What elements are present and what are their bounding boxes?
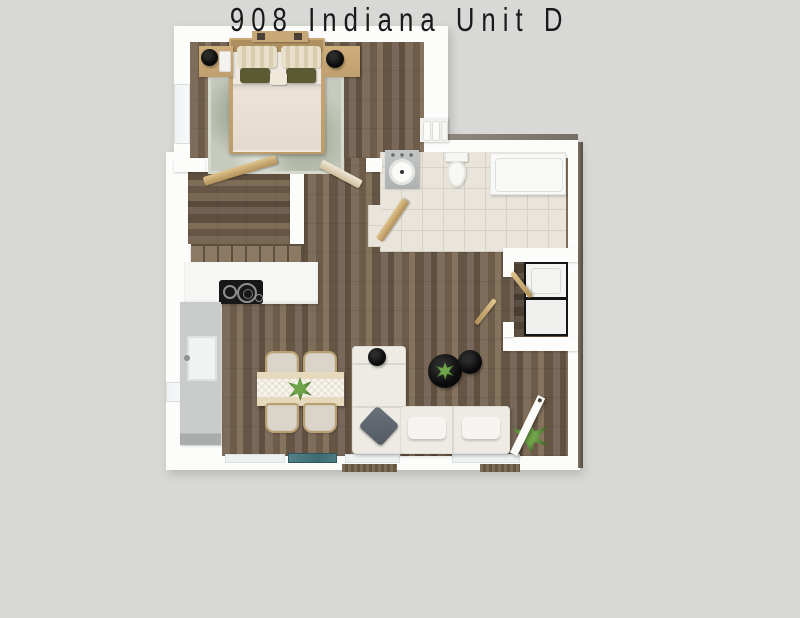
laundry-nook-south-wall [503,337,578,351]
sofa-seam-middle [452,406,454,454]
bathtub [490,153,566,195]
entry-door-handle [537,398,542,403]
striped-pillow-left [237,46,277,68]
washer-bottom-unit [526,300,566,334]
dining-chair-bottom-left [265,403,299,433]
white-throw-pillow-right [462,417,500,439]
olive-pillow-left [240,68,270,83]
accent-pillow-center [270,72,287,85]
laundry-nook-north-wall [503,248,578,262]
roof-edge-right [578,142,583,468]
bathroom-vanity [385,150,419,188]
faucet-set [389,153,415,157]
kitchen-faucet [184,355,190,361]
white-throw-pillow-left [408,417,446,439]
coffee-table-small [458,350,482,374]
burner-large [237,283,257,303]
closet-cabinet-row [191,244,303,264]
caption-text: 908 Indiana Unit D [230,1,570,39]
bedroom-south-wall-right [366,158,382,172]
rolled-towel-1 [423,121,431,141]
burner-small [223,285,237,299]
exterior-mat-right [480,464,520,472]
roof-edge-top [436,134,578,140]
stacked-washer-dryer [524,262,568,336]
kitchen-sink [187,336,217,381]
dining-chair-bottom-right [303,403,337,433]
vanity-round-sink [389,159,415,185]
cooktop [219,280,263,304]
towel-shelf [420,118,448,142]
bottom-window-sill-left [225,454,285,463]
striped-pillow-right [281,46,321,68]
closet-east-wall [290,172,304,244]
lamp-left [201,49,218,66]
bottom-window-sill-middle [345,454,400,463]
bottom-window-sill-right [452,454,520,463]
teal-glass-window [288,453,337,463]
bedroom-south-wall-left [174,158,205,172]
bedroom-window [174,84,190,144]
burner-tiny [255,294,263,302]
floor-plan-caption: 908 Indiana Unit D [0,0,800,40]
laundry-nook-jamb-bottom [503,322,514,337]
exterior-mat-left [342,464,397,472]
dryer-top-unit [526,264,566,297]
burner-large-inner-ring [243,289,253,299]
bathtub-basin [495,158,563,192]
olive-pillow-right [286,68,316,83]
rolled-towel-3 [441,121,448,141]
dryer-door [531,268,561,294]
sofa-side-table [368,348,386,366]
nightstand-tray [219,51,231,72]
duvet [233,84,321,150]
lamp-right [326,50,344,68]
sink-drain [400,170,404,174]
rolled-towel-2 [432,121,440,141]
floor-plan-image: 908 Indiana Unit D [0,0,800,618]
